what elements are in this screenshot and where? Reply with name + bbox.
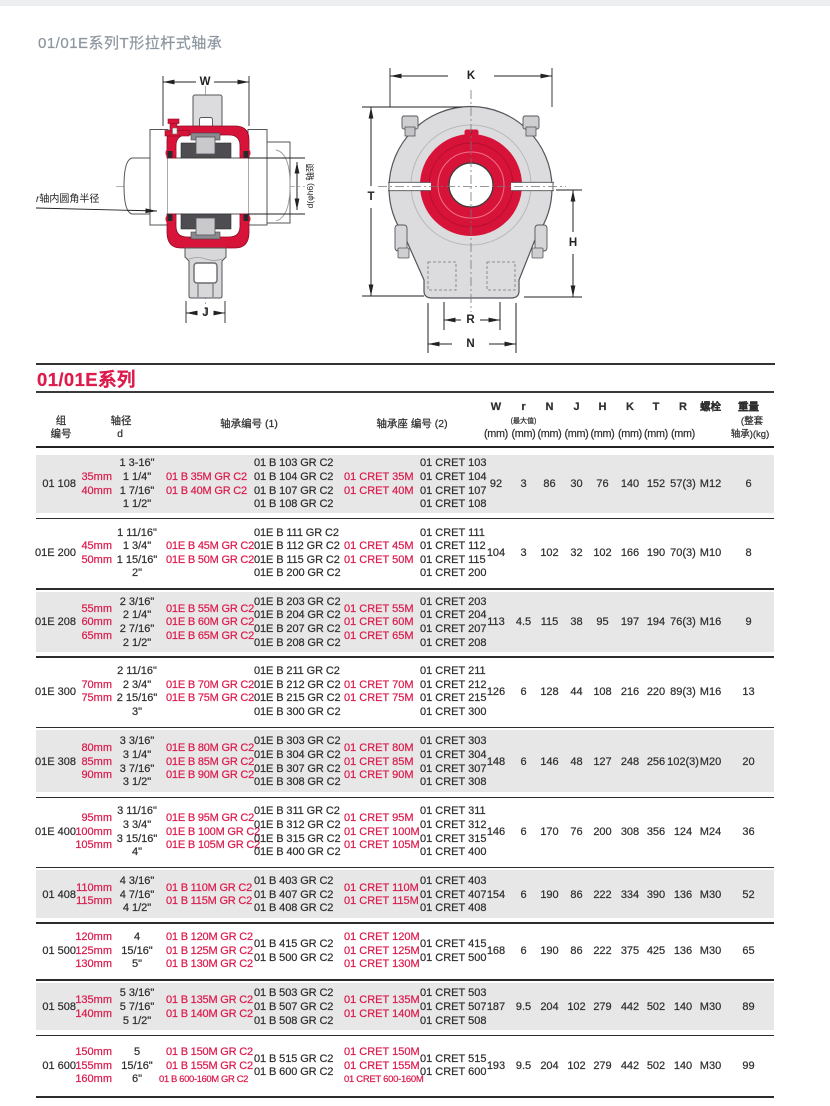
svg-text:H: H	[569, 237, 577, 249]
svg-text:N: N	[466, 338, 474, 350]
svg-text:T: T	[367, 191, 374, 203]
svg-text:W: W	[200, 76, 211, 88]
svg-text:r轴内圆角半径: r轴内圆角半径	[36, 192, 99, 205]
svg-text:J: J	[202, 307, 208, 319]
svg-text:K: K	[467, 70, 476, 82]
svg-text:R: R	[466, 314, 475, 326]
svg-text:d(φh6) 轴颈: d(φh6) 轴颈	[305, 163, 315, 208]
